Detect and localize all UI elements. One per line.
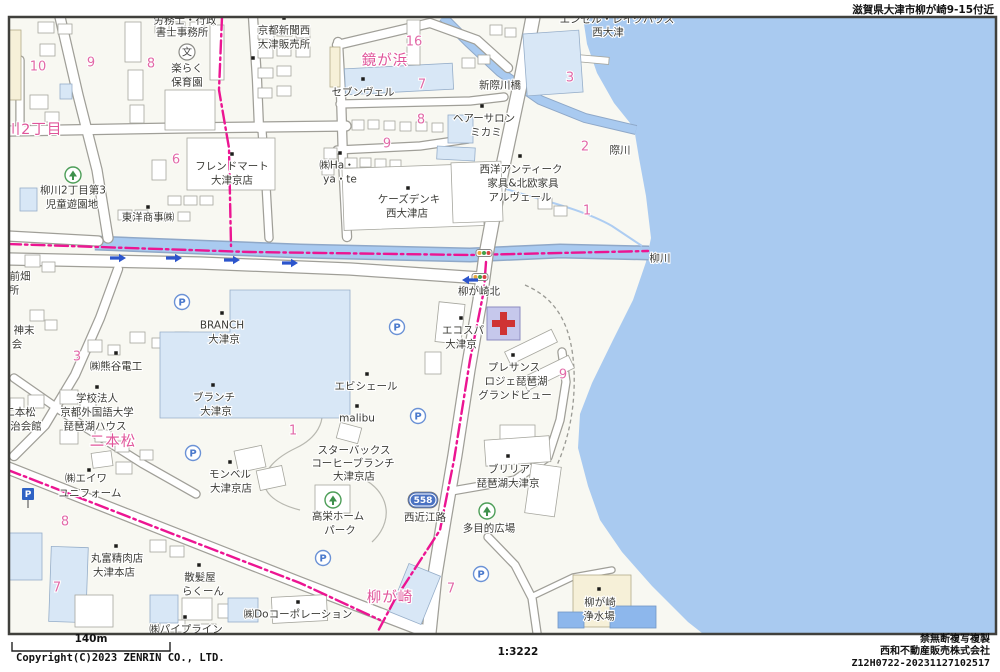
map-label: コーヒーブランチ (311, 457, 394, 470)
poi-dot (480, 104, 484, 108)
map-label: 鏡が浜 (362, 52, 409, 69)
traffic-signal-icon (476, 250, 492, 257)
map-label: 2 (581, 140, 589, 155)
svg-text:P: P (477, 570, 484, 581)
map-label: ロジェ琵琶湖 (485, 376, 548, 388)
map-label: ㈱Doコーポレーション (244, 609, 353, 621)
map-label: 楽らく (171, 62, 203, 75)
map-label: 所 (9, 285, 20, 297)
map-label: ヘアーサロン (453, 113, 515, 125)
poi-dot (114, 544, 118, 548)
map-label: 会 (12, 338, 23, 351)
map-label: 9 (87, 56, 95, 71)
map-label: 柳川 (650, 252, 671, 265)
map-label: 3 (73, 350, 81, 365)
map-label: 9 (559, 368, 567, 383)
map-label: 大津京店 (210, 482, 252, 495)
scale-bar-label: 140m (12, 633, 170, 645)
poi-dot (296, 600, 300, 604)
poi-dot (146, 205, 150, 209)
map-label: BRANCH (200, 320, 244, 332)
map-label: 新際川橋 (479, 79, 521, 92)
map-label: 神末 (14, 324, 35, 337)
parking-icon: P (316, 551, 331, 566)
route-558-shield: 558 (408, 492, 438, 508)
svg-text:P: P (393, 323, 400, 334)
map-label: 多目的広場 (463, 522, 516, 535)
map-label: アルヴェール (489, 191, 552, 204)
map-label: 琵琶湖ハウス (64, 421, 127, 433)
map-label: 9 (383, 137, 391, 152)
school-icon: 文 (179, 44, 195, 60)
poi-dot (183, 615, 187, 619)
map-label: 大津京店 (211, 174, 253, 187)
map-label: 治会館 (10, 420, 42, 433)
map-label: エビシェール (335, 381, 398, 393)
map-label: ya・te (323, 174, 357, 186)
copyright: Copyright(C)2023 ZENRIN CO., LTD. (16, 652, 225, 664)
map-label: ㈱Ha・ (319, 160, 354, 172)
map-label: 16 (406, 35, 423, 50)
map-label: らくーん (182, 586, 224, 598)
map-label: 7 (418, 78, 426, 93)
map-label: 6 (172, 153, 180, 168)
map-label: フレンドマート (195, 161, 269, 173)
map-label: 労務士・行政 (154, 14, 217, 27)
map-label: エコスパ (442, 325, 484, 337)
company-name: 西和不動産販売株式会社 (852, 646, 990, 658)
map-label: 丸富精肉店 (91, 552, 144, 565)
scale-ratio: 1:3222 (468, 646, 568, 658)
map-label: 1 (289, 424, 297, 439)
map-label: 柳川2丁目第3 (40, 184, 106, 197)
map-label: 柳が崎北 (458, 285, 500, 298)
poi-dot (251, 56, 255, 60)
tree-icon (479, 503, 495, 519)
parking-icon: P (186, 446, 201, 461)
map-label: 10 (30, 60, 47, 75)
parking-icon: P (390, 320, 405, 335)
poi-dot (406, 186, 410, 190)
svg-text:558: 558 (414, 496, 433, 506)
poi-dot (220, 311, 224, 315)
map-label: 1 (583, 204, 591, 219)
poi-dot (87, 468, 91, 472)
map-label: 大津京 (208, 333, 240, 346)
map-label: セブンヴェル (332, 86, 395, 99)
map-page: PPPPPPP文558 労務士・行政書士事務所楽らく保育園京都新聞西大津販売所セ… (0, 0, 1000, 672)
poi-dot (197, 563, 201, 567)
svg-text:P: P (189, 449, 196, 460)
parking-icon: P (474, 567, 489, 582)
map-label: スターバックス (317, 445, 390, 457)
map-label: 川2丁目 (6, 122, 63, 138)
map-label: パーク (324, 525, 356, 537)
poi-dot (361, 77, 365, 81)
map-label: 浄水場 (583, 610, 615, 623)
parking-icon: P (175, 295, 190, 310)
map-label: ケーズデンキ (378, 193, 440, 206)
map-label: malibu (339, 413, 375, 425)
map-label: ㈱エイワ (65, 473, 107, 485)
document-code: Z12H0722-20231127102517 (852, 658, 990, 670)
poi-dot (211, 383, 215, 387)
map-canvas: PPPPPPP文558 労務士・行政書士事務所楽らく保育園京都新聞西大津販売所セ… (0, 0, 1000, 672)
map-label: 西大津店 (386, 207, 428, 220)
poi-dot (338, 151, 342, 155)
map-label: 学校法人 (76, 392, 118, 405)
poi-dot (365, 372, 369, 376)
poi-dot (230, 152, 234, 156)
map-label: 8 (417, 113, 425, 128)
map-label: グランドビュー (478, 389, 552, 402)
map-label: 京都新聞西 (258, 24, 311, 37)
map-label: 保育園 (171, 76, 203, 89)
map-label: ブランチ (193, 391, 235, 404)
tree-icon (65, 167, 81, 183)
poi-dot (459, 316, 463, 320)
svg-text:P: P (319, 554, 326, 565)
map-label: ブリリア (488, 463, 530, 476)
svg-text:P: P (178, 298, 185, 309)
poi-dot (114, 351, 118, 355)
map-label: ユニフォーム (59, 488, 122, 500)
copy-notice: 禁無断複写複製 (852, 634, 990, 646)
poi-dot (506, 454, 510, 458)
poi-dot (518, 154, 522, 158)
poi-dot (355, 404, 359, 408)
poi-dot (597, 587, 601, 591)
map-label: 二本松 (90, 433, 137, 450)
map-label: 大津本店 (93, 566, 135, 579)
map-label: 際川 (610, 145, 631, 157)
poi-dot (228, 460, 232, 464)
map-label: 西近江路 (404, 511, 446, 524)
tree-icon (325, 492, 341, 508)
svg-text:P: P (414, 412, 421, 423)
poi-dot (95, 385, 99, 389)
poi-dot (511, 353, 515, 357)
map-label: 大津販売所 (258, 38, 311, 51)
map-label: 家具&北欧家具 (487, 177, 559, 190)
map-label: 高栄ホーム (312, 510, 364, 523)
svg-text:文: 文 (182, 46, 192, 59)
map-label: 書士事務所 (156, 26, 209, 39)
map-label: モンベル (209, 469, 251, 481)
map-label: 7 (53, 581, 61, 596)
map-label: 7 (447, 582, 455, 597)
map-label: 東洋商事㈱ (122, 211, 175, 224)
map-label: 西大津 (592, 26, 624, 39)
map-label: 3 (566, 71, 574, 86)
map-label: 琵琶湖大津京 (477, 477, 540, 490)
map-label: 8 (147, 57, 155, 72)
svg-text:P: P (25, 490, 32, 500)
map-label: ㈱熊谷電工 (90, 360, 143, 373)
footer-right-block: 禁無断複写複製 西和不動産販売株式会社 Z12H0722-20231127102… (852, 634, 990, 670)
map-label: 前畑 (10, 270, 31, 283)
parking-icon: P (411, 409, 426, 424)
map-label: 8 (61, 515, 69, 530)
map-label: 柳が崎 (367, 589, 414, 606)
map-area-title: 滋賀県大津市柳が崎9-15付近 (852, 2, 994, 17)
map-label: 西洋アンティーク (480, 163, 563, 176)
map-label: 大津京店 (333, 470, 375, 483)
map-label: 柳が崎 (584, 596, 616, 609)
map-label: 散髪屋 (184, 571, 216, 584)
map-label: エンゼル・レイクハウス (560, 14, 675, 26)
map-label: 児童遊園地 (46, 198, 99, 211)
map-label: 大津京 (200, 405, 232, 418)
map-label: プレサンス (488, 362, 540, 374)
map-label: 京都外国語大学 (60, 406, 134, 419)
map-label: ミカミ (470, 127, 502, 139)
map-label: 大津京 (445, 338, 477, 351)
